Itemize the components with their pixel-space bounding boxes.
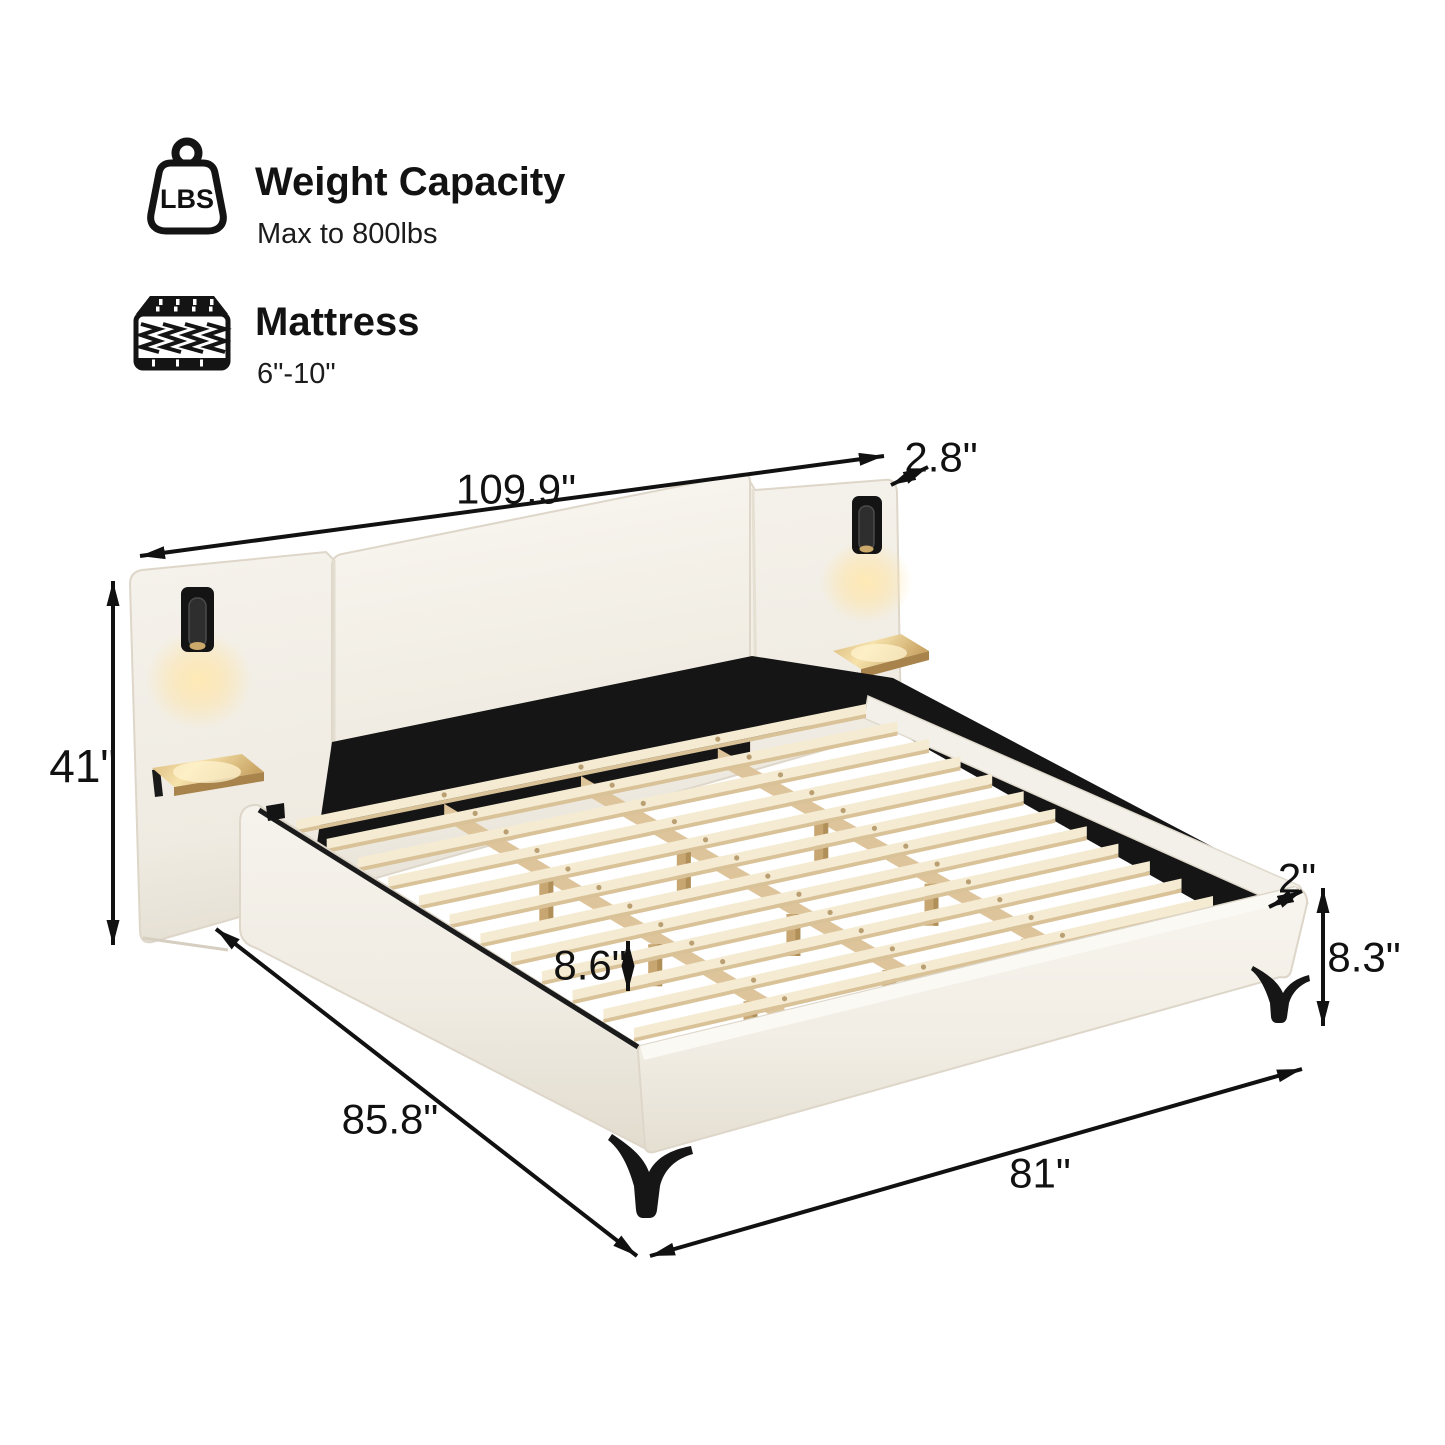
slat-screw-hole [765,873,770,878]
slat-screw-hole [903,844,908,849]
slat-screw-hole [672,819,677,824]
dim-headboard-width-label: 109.9" [456,466,576,513]
slat-screw-hole [473,811,478,816]
slat-screw-hole [841,808,846,813]
dim-rail-lip-label: 2" [1278,855,1316,902]
slat-screw-hole [1060,933,1065,938]
slat-screw-hole [997,897,1002,902]
slat-screw-hole [747,754,752,759]
slat-screw-hole [578,764,583,769]
slat-screw-hole [503,829,508,834]
slat-screw-hole [966,879,971,884]
dim-slat-clearance-label: 8.6" [553,942,626,989]
slat-screw-hole [859,928,864,933]
slat-screw-hole [778,772,783,777]
slat-screw-hole [872,826,877,831]
slat-screw-hole [935,861,940,866]
slat-screw-hole [565,866,570,871]
slat-screw-hole [534,848,539,853]
slat-screw-hole [641,801,646,806]
slat-screw-hole [703,837,708,842]
slat-screw-hole [796,892,801,897]
dim-bed-width-label: 81" [1009,1150,1071,1197]
product-dimension-diagram: LBS Weight Capacity Max to 800lbs [0,0,1445,1445]
reading-light-left-icon [181,587,214,652]
slat-screw-hole [689,940,694,945]
slat-screw-hole [890,946,895,951]
dim-frame-side-height-label: 8.3" [1327,934,1400,981]
dim-headboard-depth-label: 2.8" [904,434,977,481]
slat-screw-hole [715,737,720,742]
slat-screw-hole [921,964,926,969]
slat-screw-hole [720,959,725,964]
slat-screw-hole [1029,915,1034,920]
slat-screw-hole [809,790,814,795]
dim-bed-length-label: 85.8" [342,1096,439,1143]
slat-screw-hole [751,978,756,983]
slat-screw-hole [827,910,832,915]
slat-screw-hole [734,855,739,860]
slat-screw-hole [442,792,447,797]
slat-screw-hole [782,996,787,1001]
slat-screw-hole [658,922,663,927]
slat-screw-hole [596,885,601,890]
dim-headboard-height-label: 41" [49,740,117,792]
slat-screw-hole [610,783,615,788]
bed-illustration: 109.9" 2.8" 41" 8.6" 2" 8.3" 85.8" 81" [0,0,1445,1445]
reading-light-right-icon [852,496,882,554]
slat-screw-hole [627,903,632,908]
